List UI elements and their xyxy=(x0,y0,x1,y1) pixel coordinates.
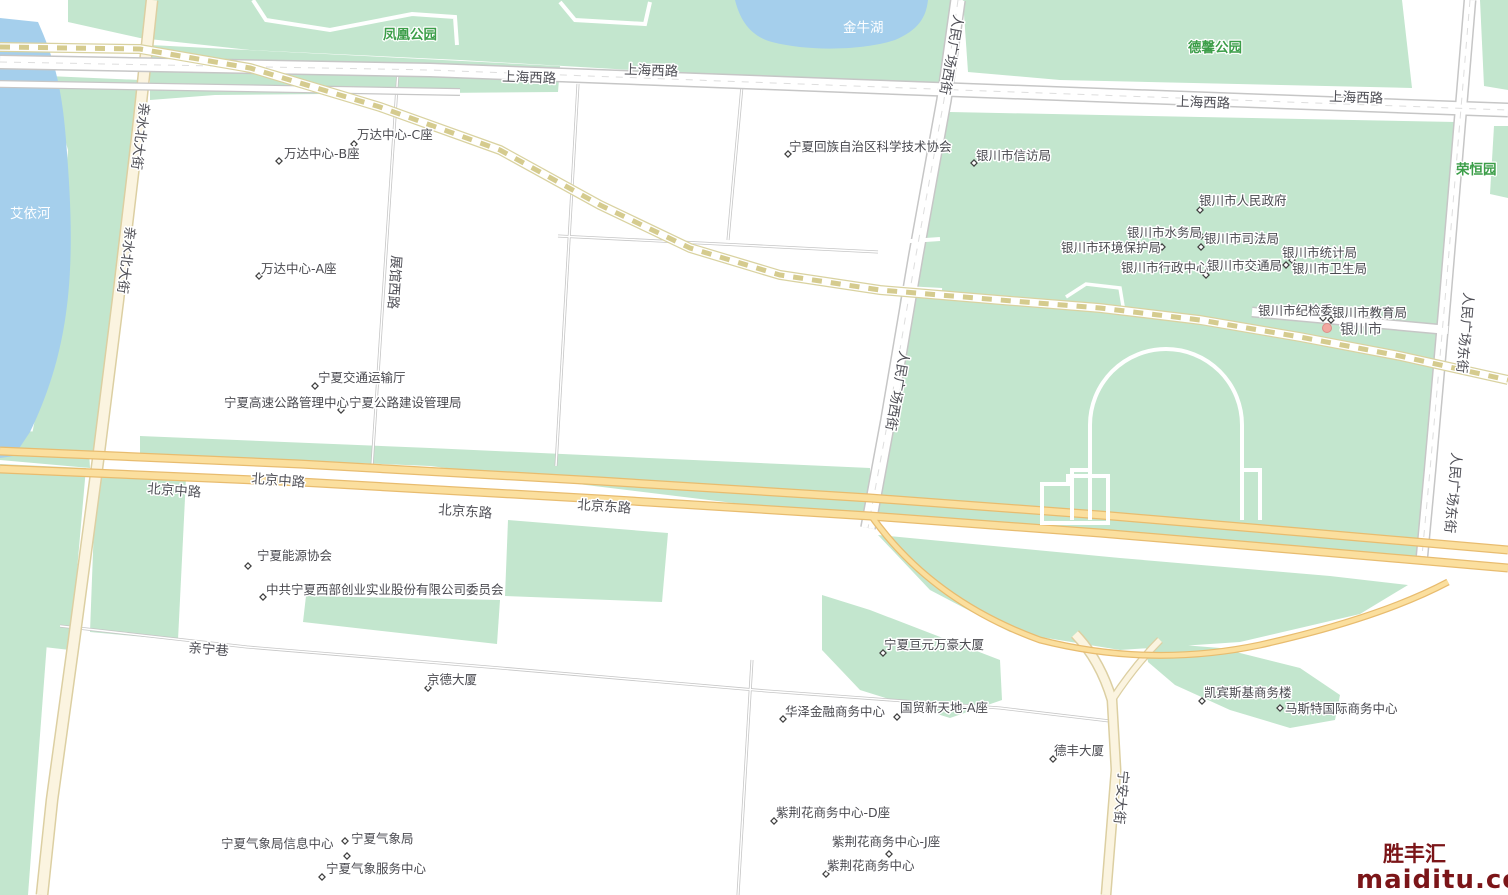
city-dot[interactable] xyxy=(1323,324,1332,333)
svg-text:万达中心-A座: 万达中心-A座 xyxy=(261,261,337,276)
road-label-qinning: 亲宁巷 xyxy=(188,639,230,660)
poi-marker[interactable]: 银川市交通局 xyxy=(1207,258,1282,273)
poi-marker[interactable]: 银川市水务局 xyxy=(1127,225,1204,240)
svg-text:银川市统计局: 银川市统计局 xyxy=(1282,245,1357,260)
svg-text:马斯特国际商务中心: 马斯特国际商务中心 xyxy=(1285,701,1398,716)
road-label-shanghai-west: 上海西路 xyxy=(1329,89,1384,107)
svg-text:京德大厦: 京德大厦 xyxy=(427,672,477,687)
lake-label-jinniu: 金牛湖 xyxy=(843,20,884,36)
svg-text:宁夏回族自治区科学技术协会: 宁夏回族自治区科学技术协会 xyxy=(789,139,952,154)
svg-text:银川市环境保护局: 银川市环境保护局 xyxy=(1061,240,1161,255)
svg-text:银川市教育局: 银川市教育局 xyxy=(1332,305,1407,320)
svg-text:德丰大厦: 德丰大厦 xyxy=(1054,743,1104,758)
map-page: 上海西路 上海西路 上海西路 上海西路 北京中路 北京中路 北京东路 北京东路 … xyxy=(0,0,1508,895)
svg-text:紫荆花商务中心: 紫荆花商务中心 xyxy=(827,858,915,873)
poi-marker[interactable]: 宁夏气象局 xyxy=(342,831,414,846)
svg-text:凯宾斯基商务楼: 凯宾斯基商务楼 xyxy=(1204,685,1292,700)
river-label-aiyi: 艾依河 xyxy=(10,206,51,222)
svg-text:国贸新天地-A座: 国贸新天地-A座 xyxy=(900,700,988,715)
svg-text:银川市行政中心: 银川市行政中心 xyxy=(1121,260,1209,275)
svg-text:银川市交通局: 银川市交通局 xyxy=(1207,258,1282,273)
svg-text:华泽金融商务中心: 华泽金融商务中心 xyxy=(785,704,886,719)
svg-text:银川市水务局: 银川市水务局 xyxy=(1127,225,1202,240)
watermark-brand: 胜丰汇 xyxy=(1383,842,1446,866)
svg-text:万达中心-C座: 万达中心-C座 xyxy=(357,127,433,142)
road-label-shanghai-west: 上海西路 xyxy=(1176,94,1231,112)
svg-text:紫荆花商务中心-D座: 紫荆花商务中心-D座 xyxy=(776,805,890,820)
road-label-shanghai-west: 上海西路 xyxy=(502,69,557,87)
svg-text:宁夏气象局: 宁夏气象局 xyxy=(351,831,414,846)
svg-text:银川市司法局: 银川市司法局 xyxy=(1204,231,1279,246)
svg-text:宁夏高速公路管理中心宁夏公路建设管理局: 宁夏高速公路管理中心宁夏公路建设管理局 xyxy=(224,395,462,410)
svg-text:宁夏气象局信息中心: 宁夏气象局信息中心 xyxy=(221,836,334,851)
svg-text:银川市卫生局: 银川市卫生局 xyxy=(1292,261,1367,276)
poi-marker[interactable]: 马斯特国际商务中心 xyxy=(1277,701,1398,716)
svg-text:银川市信访局: 银川市信访局 xyxy=(976,148,1051,163)
city-label: 银川市 xyxy=(1340,321,1382,338)
park-label-fenghuang: 凤凰公园 xyxy=(383,27,437,43)
svg-text:宁夏能源协会: 宁夏能源协会 xyxy=(257,548,333,563)
svg-text:银川市人民政府: 银川市人民政府 xyxy=(1199,193,1287,208)
svg-text:银川市纪检委: 银川市纪检委 xyxy=(1258,303,1334,318)
svg-text:宁夏交通运输厅: 宁夏交通运输厅 xyxy=(318,370,406,385)
poi-marker[interactable]: 银川市卫生局 xyxy=(1283,261,1367,276)
park-label-rongheng: 荣恒园 xyxy=(1455,161,1497,178)
watermark-site: maiditu.com xyxy=(1356,865,1508,895)
svg-text:宁夏气象服务中心: 宁夏气象服务中心 xyxy=(326,861,427,876)
road-label-shanghai-west: 上海西路 xyxy=(624,62,679,80)
svg-text:万达中心-B座: 万达中心-B座 xyxy=(284,146,360,161)
svg-text:紫荆花商务中心-J座: 紫荆花商务中心-J座 xyxy=(832,834,940,849)
park-label-dexin: 德馨公园 xyxy=(1188,39,1242,56)
poi-marker[interactable]: 银川市环境保护局 xyxy=(1061,240,1165,255)
svg-text:宁夏亘元万豪大厦: 宁夏亘元万豪大厦 xyxy=(884,637,984,652)
svg-text:中共宁夏西部创业实业股份有限公司委员会: 中共宁夏西部创业实业股份有限公司委员会 xyxy=(266,582,504,597)
map-canvas[interactable]: 上海西路 上海西路 上海西路 上海西路 北京中路 北京中路 北京东路 北京东路 … xyxy=(0,0,1508,895)
